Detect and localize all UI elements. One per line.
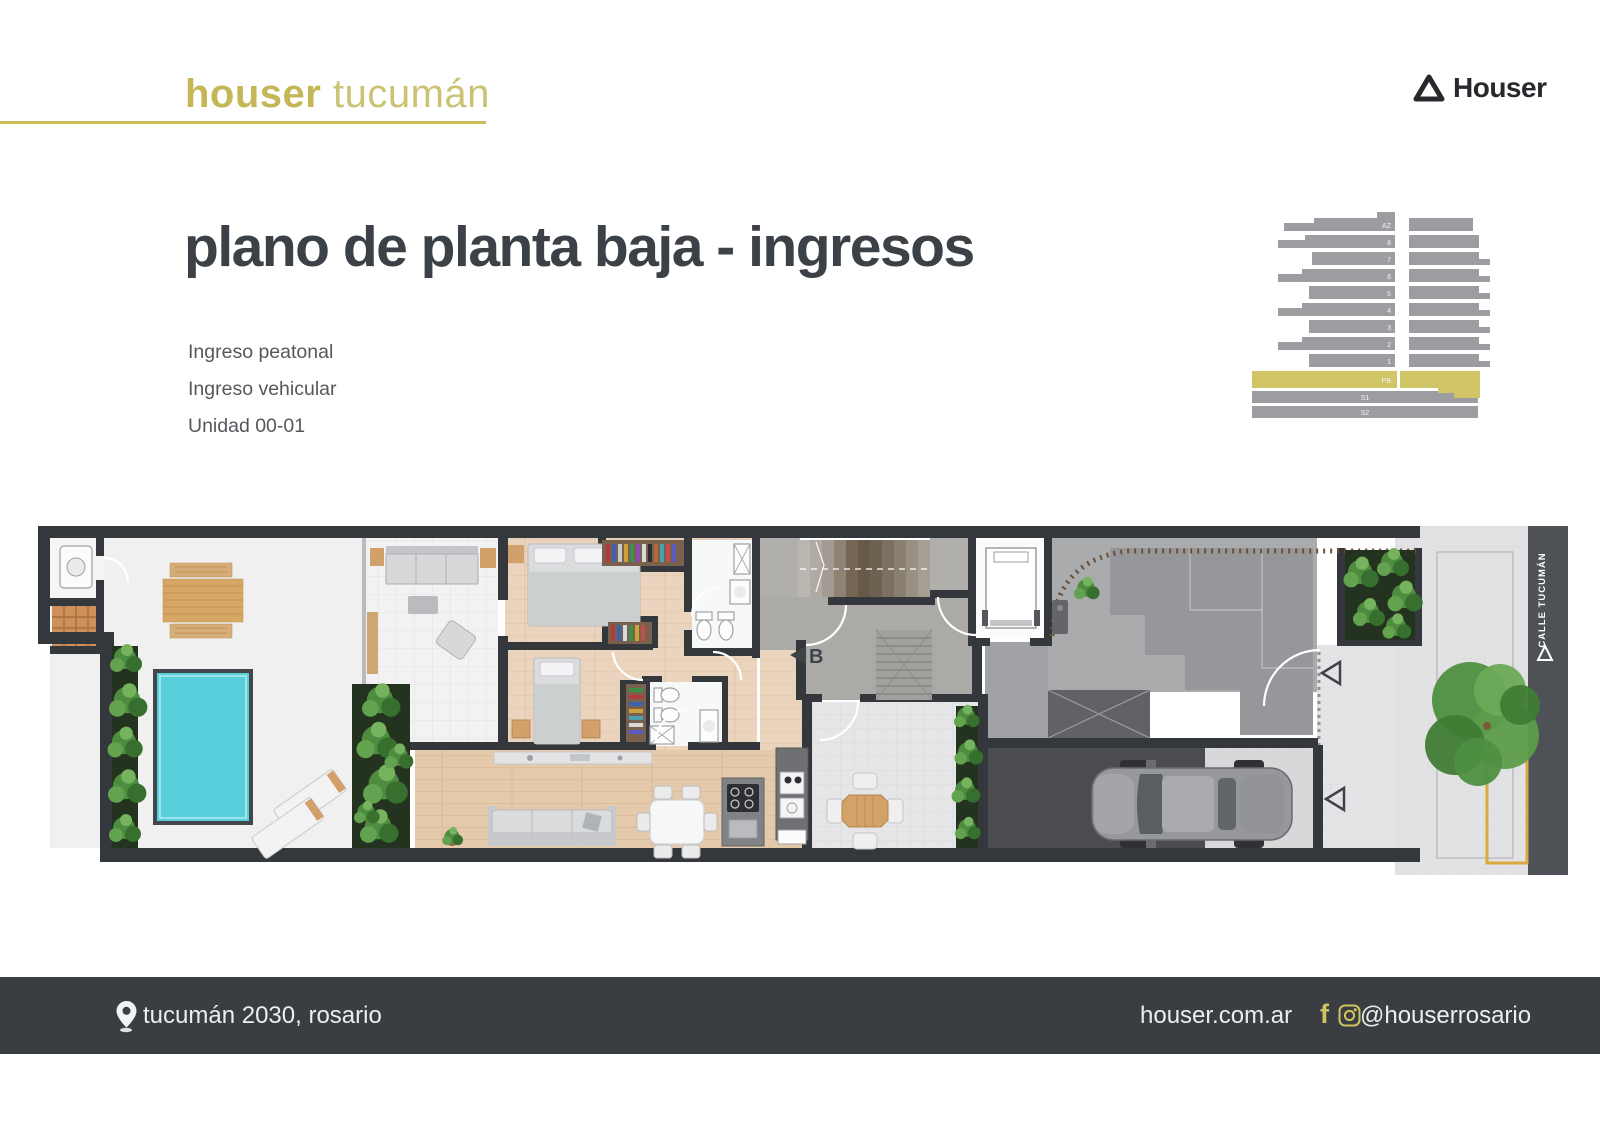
footer-website-link[interactable]: houser.com.ar [1140, 977, 1292, 1054]
floor-label: 3 [1387, 325, 1391, 332]
floor-plan: B CALLE TUCUMÁN [28, 518, 1572, 880]
brand-bold: houser [185, 72, 321, 116]
floor-label: 4 [1387, 308, 1391, 315]
brand-underline [0, 121, 486, 124]
logo-text: Houser [1453, 72, 1546, 104]
page-title: plano de planta baja - ingresos [184, 214, 974, 280]
floor-label: 6 [1387, 274, 1391, 281]
footer-address: tucumán 2030, rosario [143, 977, 382, 1054]
kitchen-counter [776, 748, 808, 844]
legend-item-unit: Unidad 00-01 [188, 408, 337, 445]
floor-label: 8 [1387, 240, 1391, 247]
building-elevation-diagram: AZ 8 7 6 5 4 3 2 1 PB S1 S2 [1252, 205, 1492, 421]
swimming-pool [155, 671, 251, 823]
section-marker-label: B [809, 646, 823, 668]
legend-item-vehicular: Ingreso vehicular [188, 371, 337, 408]
houser-logo: Houser [1413, 72, 1546, 104]
outdoor-wood-table [163, 563, 243, 638]
basement2-label: S2 [1361, 410, 1370, 417]
footer-social-handle[interactable]: @houserrosario [1360, 977, 1531, 1054]
street-label: CALLE TUCUMÁN [1537, 552, 1548, 647]
corridor-floor [760, 650, 802, 750]
instagram-icon[interactable] [1338, 1004, 1361, 1027]
ground-floor-label: PB [1382, 378, 1392, 385]
floor-label: 5 [1387, 291, 1391, 298]
basement1-label: S1 [1361, 395, 1370, 402]
car [1092, 760, 1292, 848]
brand-light: tucumán [333, 72, 490, 116]
basement-staircase [876, 630, 932, 700]
main-staircase [798, 540, 930, 597]
washing-machine [60, 546, 92, 588]
footer: tucumán 2030, rosario houser.com.ar f @h… [0, 977, 1600, 1054]
elevator [976, 540, 1044, 638]
floor-label: AZ [1382, 223, 1392, 230]
location-pin-icon [113, 1000, 140, 1033]
brand-title: houser tucumán [185, 72, 490, 116]
legend-item-pedestrian: Ingreso peatonal [188, 334, 337, 371]
legend: Ingreso peatonal Ingreso vehicular Unida… [188, 334, 337, 445]
living-dining-sofa [488, 806, 616, 846]
floor-label: 2 [1387, 342, 1391, 349]
triangle-logo-icon [1413, 73, 1445, 103]
floor-label: 1 [1387, 359, 1391, 366]
kitchen-island [722, 778, 764, 846]
vestibule-floor [930, 538, 970, 597]
page: houser tucumán Houser plano de planta ba… [0, 0, 1600, 1131]
kitchen-sideboard [494, 752, 652, 764]
facebook-icon[interactable]: f [1320, 977, 1329, 1054]
floor-label: 7 [1387, 257, 1391, 264]
